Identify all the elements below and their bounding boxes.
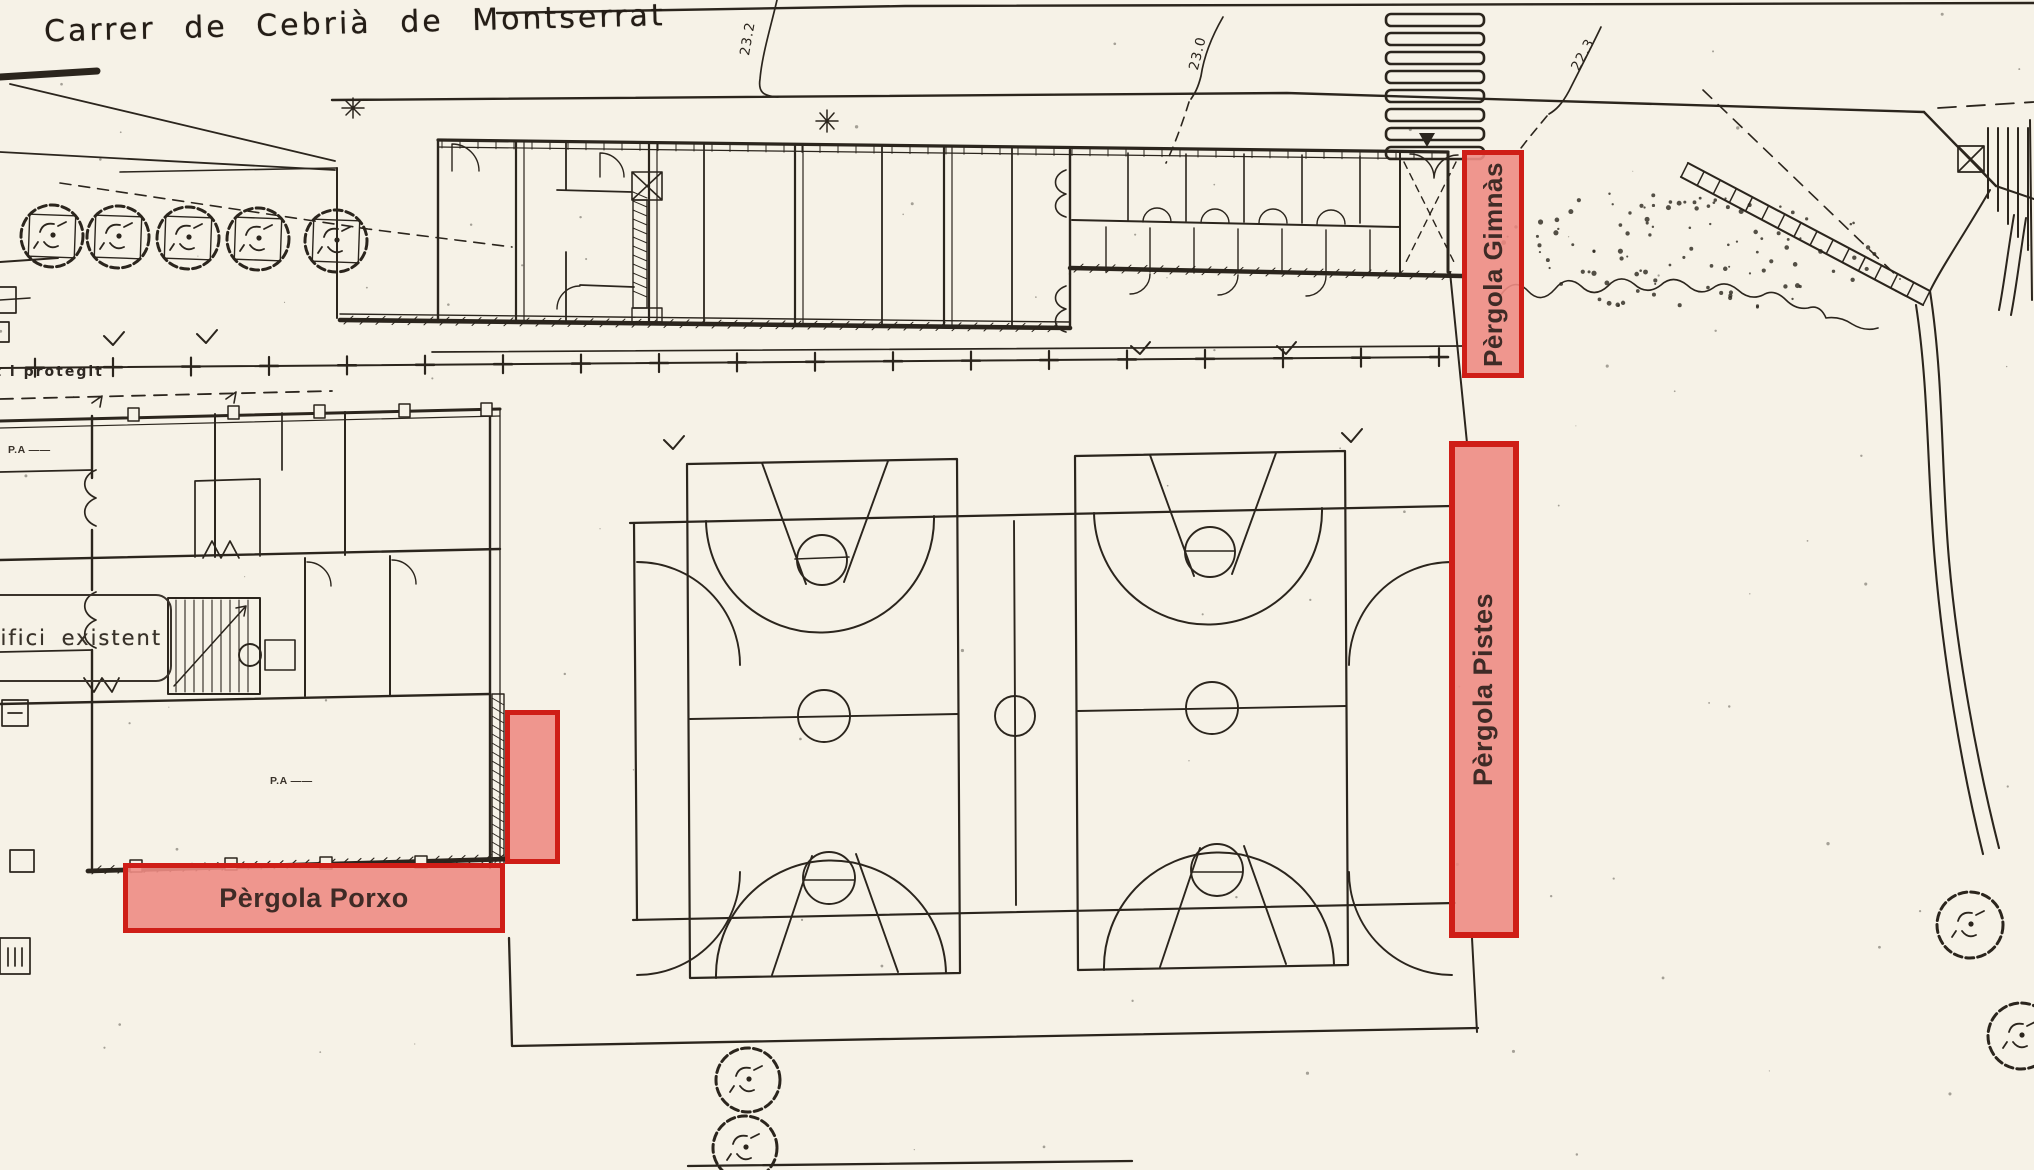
highlight-pergola-gimnas: Pèrgola Gimnàs — [1462, 150, 1524, 378]
pa-annotation-lower: P.A —— — [270, 775, 313, 787]
existing-building-callout: Edifici existent — [0, 594, 172, 682]
plan-linework — [0, 0, 2034, 1170]
scanned-site-plan: Carrer de Cebrià de Montserrat Edifici e… — [0, 0, 2034, 1170]
pergola-pistes-label: Pèrgola Pistes — [1469, 593, 1500, 786]
highlight-pergola-pistes: Pèrgola Pistes — [1449, 441, 1519, 938]
edge-note-label: rat i protegit — [0, 364, 104, 380]
highlight-pergola-porxo: Pèrgola Porxo — [123, 863, 505, 933]
crosswalk-hatch-icon — [1386, 14, 1484, 159]
pergola-porxo-label: Pèrgola Porxo — [219, 883, 409, 914]
highlight-pergola-unlabeled — [505, 710, 560, 864]
pa-annotation-upper: P.A —— — [8, 444, 51, 456]
existing-building-label: Edifici existent — [0, 626, 162, 650]
pergola-gimnas-label: Pèrgola Gimnàs — [1478, 162, 1509, 367]
